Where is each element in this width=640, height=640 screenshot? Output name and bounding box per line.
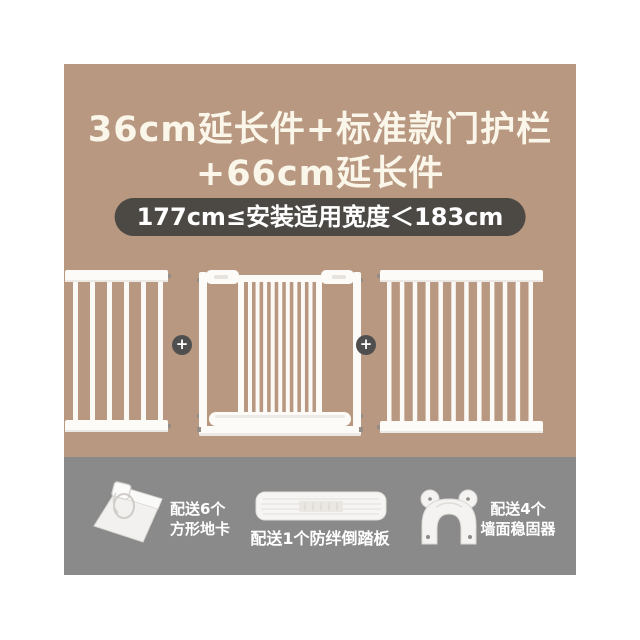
square-floor-pad-icon (86, 479, 176, 549)
standard-door-gate-graphic (197, 262, 363, 440)
product-image-card: 36cm延长件+标准款门护栏 +66cm延长件 177cm≤安装适用宽度＜183… (64, 64, 576, 575)
anti-trip-pedal-label: 配送1个防绊倒踏板 (224, 525, 416, 549)
wall-stabilizer-label: 配送4个 墙面稳固器 (472, 499, 564, 539)
accessories-band: 配送6个 方形地卡 配送1个防绊倒踏板 (64, 457, 576, 575)
plus-icon: + (172, 335, 192, 355)
extension-panel-66cm-graphic (377, 268, 543, 435)
floor-pad-label: 配送6个 方形地卡 (170, 499, 230, 539)
extension-panel-36cm-graphic (65, 268, 171, 434)
hero-section: 36cm延长件+标准款门护栏 +66cm延长件 177cm≤安装适用宽度＜183… (64, 64, 576, 457)
anti-trip-pedal-icon (255, 491, 387, 521)
product-title-line2: +66cm延长件 (64, 152, 576, 196)
product-title-line1: 36cm延长件+标准款门护栏 (64, 108, 576, 152)
plus-icon: + (356, 335, 376, 355)
product-title: 36cm延长件+标准款门护栏 +66cm延长件 (64, 108, 576, 196)
width-range-badge: 177cm≤安装适用宽度＜183cm (115, 198, 526, 236)
